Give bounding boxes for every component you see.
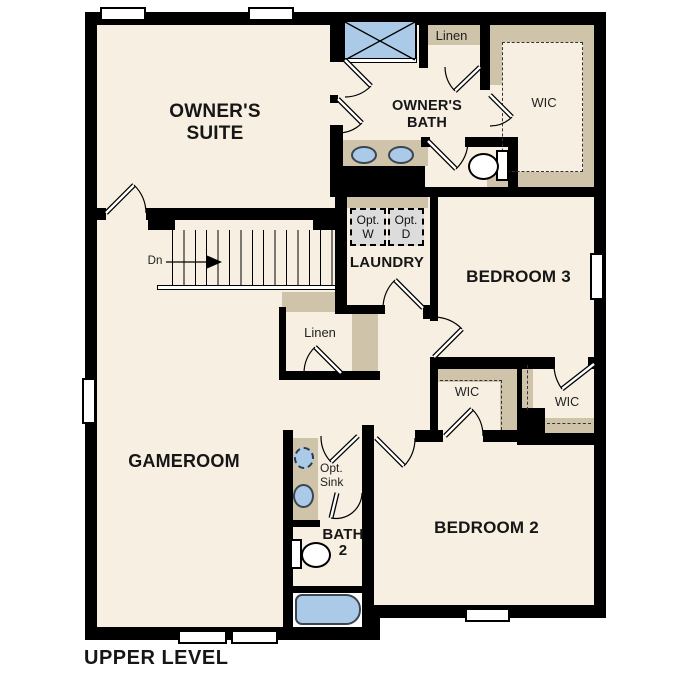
wic-left-shelf-right	[500, 365, 517, 437]
wall-bedroom2-top-b	[483, 430, 517, 442]
wall-bedroom2-top-c	[517, 433, 594, 445]
stair-half-wall	[282, 292, 338, 312]
bath2-optional-sink	[294, 447, 314, 469]
owners-toilet-bowl	[468, 153, 499, 180]
wall-bedroom3-bottom-nub	[588, 357, 594, 369]
wall-exterior-right	[594, 12, 606, 618]
owners-suite-label-line1: OWNER'S	[130, 101, 300, 123]
owners-bath-label-line1: OWNER'S	[377, 98, 477, 115]
bath2-label-line1: BATH	[312, 527, 374, 543]
wall-bedroom3-bottom	[430, 357, 555, 369]
linen-hall-label: Linen	[289, 325, 351, 340]
wall-stair-block-left	[148, 208, 175, 230]
laundry-label: LAUNDRY	[337, 254, 437, 271]
stairs-treads	[172, 230, 343, 287]
wic-bedroom2-right-label: WIC	[536, 395, 598, 409]
shower-glass-door	[345, 58, 417, 63]
wall-laundry-left	[335, 190, 347, 314]
optional-washer-label-1: Opt.	[357, 213, 380, 227]
bathtub	[295, 594, 361, 625]
optional-sink-label-line2: Sink	[320, 475, 356, 489]
stairs-rail	[157, 285, 345, 290]
owners-suite-label-line2: SUITE	[130, 123, 300, 145]
stairs-dn-label: Dn	[144, 255, 166, 267]
bath2-label: BATH 2	[312, 527, 374, 559]
wall-linen-hall-left	[279, 307, 286, 378]
bedroom2-label: BEDROOM 2	[409, 518, 564, 538]
wall-wc-nub	[421, 137, 430, 147]
optional-dryer-label-1: Opt.	[395, 213, 418, 227]
wall-bath2-left	[283, 430, 293, 640]
wic-owners-label: WIC	[513, 95, 575, 110]
window-bedroom2	[465, 608, 510, 622]
owners-bath-label: OWNER'S BATH	[377, 98, 477, 132]
owners-sink-left	[351, 146, 377, 164]
owners-suite-label: OWNER'S SUITE	[130, 101, 300, 145]
wall-bath-left-upper	[330, 12, 343, 62]
optional-dryer-box: Opt. D	[388, 208, 424, 246]
wall-linen-upper-right	[480, 12, 490, 90]
optional-washer-box: Opt. W	[350, 208, 386, 246]
linen-upper-label: Linen	[423, 28, 480, 43]
owners-bath-label-line2: BATH	[377, 115, 477, 132]
window-suite-1	[100, 7, 146, 21]
wall-linen-hall-bottom	[279, 371, 380, 380]
linen-hall-shelf	[352, 314, 378, 371]
wall-bath2-stub	[291, 520, 320, 527]
wall-exterior-left	[85, 12, 97, 640]
window-gameroom-left	[82, 378, 96, 424]
optional-sink-label: Opt. Sink	[320, 461, 356, 489]
wic-divider-dashes	[527, 365, 528, 410]
gameroom-label: GAMEROOM	[109, 451, 259, 472]
wall-laundry-bottom	[335, 305, 385, 314]
laundry-counter	[347, 197, 428, 208]
wall-bath-left-lower	[330, 125, 343, 168]
window-gameroom-bottom-1	[178, 630, 227, 644]
floor-plan: Opt. W Opt. D	[0, 0, 687, 687]
optional-washer-label-2: W	[362, 227, 373, 241]
plan-title: UPPER LEVEL	[84, 647, 384, 670]
optional-dryer-label-2: D	[402, 227, 411, 241]
wall-suite-nub	[85, 208, 106, 220]
wall-wic-left-lower	[430, 369, 438, 442]
bath2-sink	[293, 484, 314, 508]
optional-sink-label-line1: Opt.	[320, 461, 356, 475]
window-gameroom-bottom-2	[231, 630, 278, 644]
wall-mid-horizontal	[330, 187, 606, 197]
wall-wic-divider	[517, 360, 522, 408]
window-suite-2	[248, 7, 294, 21]
wic-right-shelf-dashes	[547, 423, 591, 424]
bath2-label-line2: 2	[312, 543, 374, 559]
wall-bath-left-nub	[330, 95, 338, 103]
bedroom3-label: BEDROOM 3	[441, 267, 596, 287]
wic-bedroom2-left-label: WIC	[436, 385, 498, 399]
wall-bedroom2-top-a	[415, 430, 443, 442]
owners-sink-right	[388, 146, 414, 164]
shower	[343, 20, 417, 62]
wall-tub-top	[288, 586, 374, 593]
